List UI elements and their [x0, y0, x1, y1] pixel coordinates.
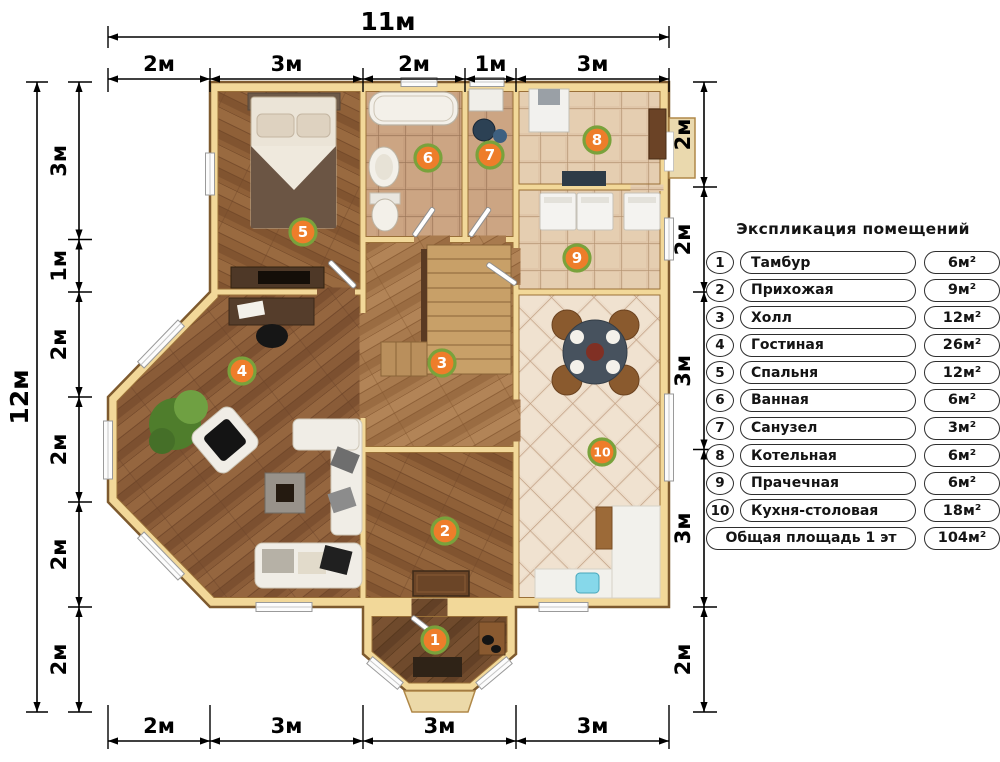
legend-panel: Экспликация помещений 1 Тамбур 6м² 2 При… [706, 220, 1000, 555]
window-kitchen-bottom [539, 603, 588, 612]
plate [570, 360, 584, 374]
legend-row-4: 4 Гостиная 26м² [706, 334, 1000, 357]
legend-row-1: 1 Тамбур 6м² [706, 251, 1000, 274]
legend-title: Экспликация помещений [706, 220, 1000, 238]
small-sink [493, 129, 507, 143]
svg-text:7: 7 [485, 146, 495, 164]
svg-text:2м: 2м [143, 714, 175, 738]
window-living-bottom [256, 603, 312, 612]
svg-text:9: 9 [572, 249, 582, 267]
pillow [257, 114, 294, 137]
bathtub [369, 92, 458, 125]
svg-text:3: 3 [437, 354, 447, 372]
plate [606, 360, 620, 374]
legend-room-name: Тамбур [740, 251, 916, 274]
room-badge-4: 4 [229, 358, 255, 384]
pillow [297, 114, 330, 137]
svg-text:3м: 3м [577, 714, 609, 738]
legend-row-9: 9 Прачечная 6м² [706, 472, 1000, 495]
room-badge-2: 2 [432, 518, 458, 544]
svg-text:2м: 2м [47, 434, 71, 466]
svg-text:1м: 1м [475, 52, 507, 76]
console [562, 171, 606, 186]
dim-top-total: 11м [360, 7, 415, 36]
door-leaf-dark [649, 109, 666, 159]
legend-room-area: 6м² [924, 251, 1000, 274]
legend-total-row: Общая площадь 1 эт 104м² [706, 527, 1000, 550]
legend-room-number: 1 [706, 251, 734, 274]
toilet [372, 199, 398, 231]
svg-text:2м: 2м [143, 52, 175, 76]
svg-text:3м: 3м [671, 355, 695, 387]
svg-text:3м: 3м [671, 512, 695, 544]
svg-text:2: 2 [440, 522, 450, 540]
svg-text:3м: 3м [271, 714, 303, 738]
cabinet [469, 89, 503, 111]
svg-text:4: 4 [237, 362, 247, 380]
room-badge-8: 8 [584, 127, 610, 153]
svg-text:5: 5 [298, 223, 308, 241]
svg-text:2м: 2м [47, 539, 71, 571]
desk-chair [256, 324, 288, 348]
legend-total-area: 104м² [924, 527, 1000, 550]
svg-text:2м: 2м [47, 644, 71, 676]
entry-hall-furniture [413, 571, 469, 596]
room-badge-1: 1 [422, 627, 448, 653]
svg-text:2м: 2м [47, 329, 71, 361]
monitor [258, 271, 310, 284]
svg-text:2м: 2м [671, 119, 695, 151]
svg-text:2м: 2м [671, 224, 695, 256]
legend-row-7: 7 Санузел 3м² [706, 417, 1000, 440]
svg-text:1м: 1м [47, 250, 71, 282]
porch [404, 691, 475, 712]
room-badge-5: 5 [290, 219, 316, 245]
floor-plan-page: 1 2 3 4 5 6 7 8 9 10 11м 2м 3м 2м 1м 3м … [0, 0, 1000, 762]
plate [570, 330, 584, 344]
building: 1 2 3 4 5 6 7 8 9 10 [104, 78, 696, 713]
room-badge-10: 10 [589, 439, 615, 465]
svg-text:1: 1 [430, 631, 440, 649]
laundry-furniture [540, 193, 660, 230]
window-bedroom-left [206, 153, 215, 195]
kitchen-sink [576, 573, 599, 593]
room-badge-6: 6 [415, 145, 441, 171]
door-mat [413, 657, 462, 677]
counter [612, 506, 660, 598]
window-bay-left [104, 421, 113, 479]
cabinet-wood [596, 507, 612, 549]
room-badge-9: 9 [564, 245, 590, 271]
svg-text:2м: 2м [398, 52, 430, 76]
legend-row-2: 2 Прихожая 9м² [706, 279, 1000, 302]
svg-text:3м: 3м [424, 714, 456, 738]
washbasin-dark [473, 119, 495, 141]
legend-row-8: 8 Котельная 6м² [706, 444, 1000, 467]
svg-text:3м: 3м [47, 145, 71, 177]
counter [535, 569, 612, 598]
room-badge-7: 7 [477, 142, 503, 168]
svg-text:3м: 3м [271, 52, 303, 76]
legend-row-3: 3 Холл 12м² [706, 306, 1000, 329]
svg-text:6: 6 [423, 149, 433, 167]
dim-left-total: 12м [5, 369, 34, 424]
stair-landing [381, 342, 427, 376]
svg-text:2м: 2м [671, 644, 695, 676]
legend-total-label: Общая площадь 1 эт [706, 527, 916, 550]
legend-row-10: 10 Кухня-столовая 18м² [706, 499, 1000, 522]
svg-text:8: 8 [592, 131, 602, 149]
table-center [586, 343, 604, 361]
svg-text:3м: 3м [577, 52, 609, 76]
window-kitchen-right [665, 394, 674, 481]
svg-text:10: 10 [593, 445, 611, 460]
plate [606, 330, 620, 344]
room-badge-3: 3 [429, 350, 455, 376]
legend-row-6: 6 Ванная 6м² [706, 389, 1000, 412]
legend-row-5: 5 Спальня 12м² [706, 361, 1000, 384]
